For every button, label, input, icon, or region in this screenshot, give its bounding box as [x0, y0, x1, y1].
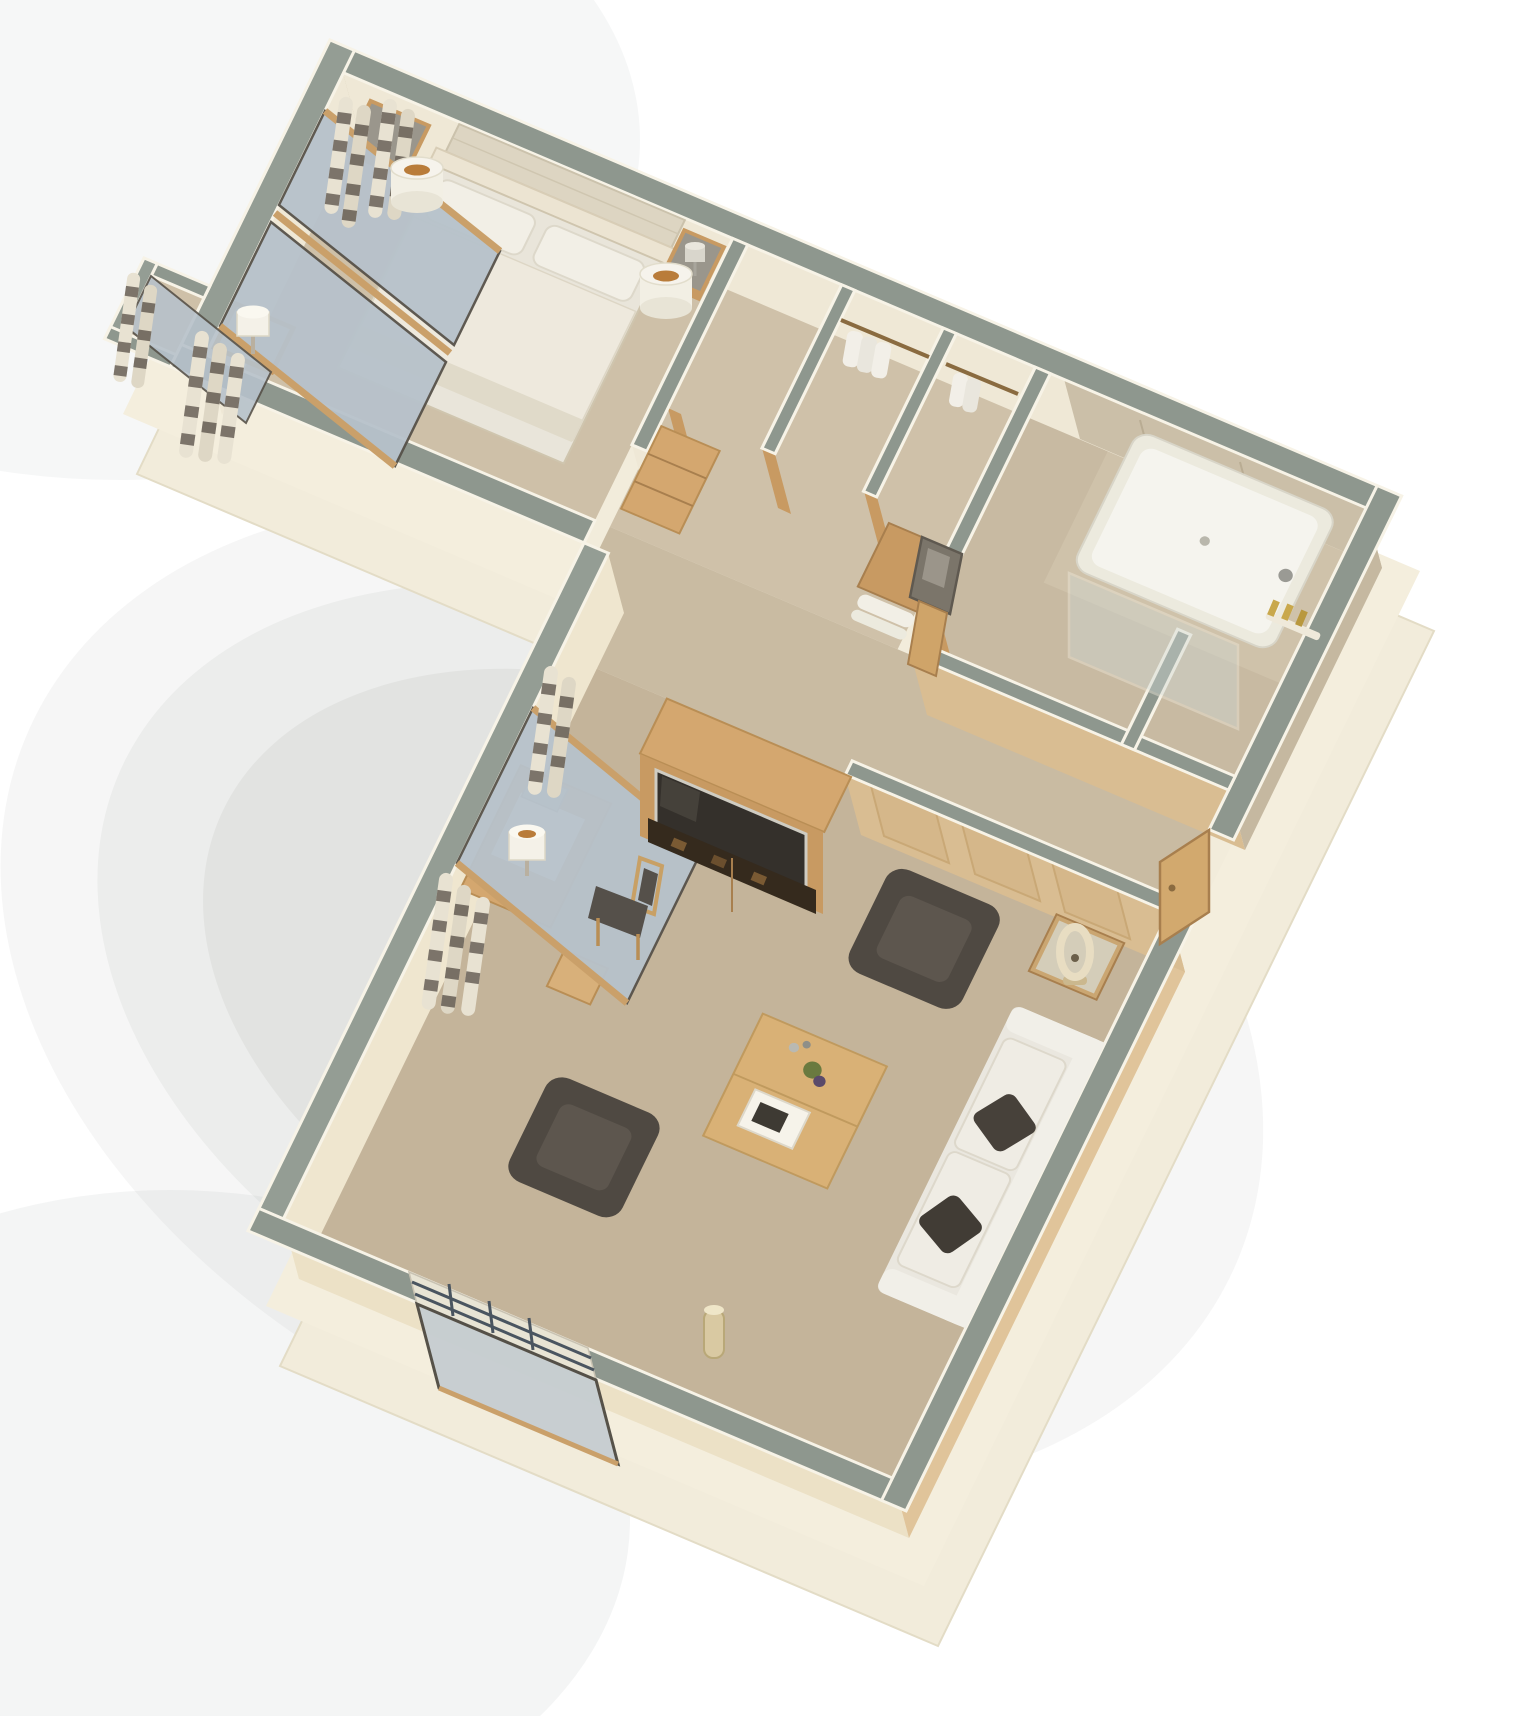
ring-lamp-center [1071, 954, 1079, 962]
curtain-stripe [184, 405, 199, 418]
lamp-shade-top [237, 306, 269, 319]
floor-lamp-top [704, 1305, 724, 1315]
curtain-stripe [224, 396, 239, 409]
curtain-stripe [449, 935, 464, 948]
pendant-inner-wood [404, 165, 430, 176]
curtain-stripe [328, 167, 343, 180]
gold-floor-lamp [704, 1305, 724, 1358]
curtain-stripe [454, 904, 469, 917]
pendant-bottom [640, 297, 692, 319]
curtain-stripe [125, 286, 139, 298]
curtain-stripe [432, 920, 447, 933]
curtain-stripe [114, 365, 128, 377]
curtain-stripe [332, 140, 347, 153]
curtain-stripe [229, 366, 244, 379]
curtain-stripe [325, 193, 340, 206]
curtain-stripe [141, 302, 155, 314]
curtain-stripe [469, 942, 484, 955]
curtain-stripe [137, 330, 151, 342]
curtain-stripe [377, 140, 392, 153]
curtain-stripe [555, 726, 570, 739]
curtain-stripe [441, 995, 456, 1008]
curtain-stripe [445, 967, 460, 980]
lamp-inner-wood [518, 830, 536, 838]
curtain-stripe [428, 949, 443, 962]
floorplan-render [0, 0, 1530, 1716]
curtain-stripe [436, 890, 451, 903]
curtain-stripe [345, 183, 360, 196]
curtain-stripe [533, 742, 548, 755]
curtain-stripe [550, 755, 565, 768]
curtain-stripe [354, 124, 369, 137]
curtain-stripe [559, 696, 574, 709]
curtain-stripe [206, 392, 221, 405]
curtain-stripe [133, 357, 147, 369]
curtain-stripe [373, 167, 388, 180]
curtain-stripe [192, 346, 207, 359]
curtain-stripe [423, 979, 438, 992]
curtain-stripe [465, 971, 480, 984]
curtain-stripe [541, 683, 556, 696]
lamp-shade-top [685, 242, 705, 250]
curtain-stripe [180, 433, 195, 446]
curtain-stripe [529, 770, 544, 783]
curtain-stripe [336, 112, 351, 125]
curtain-stripe [121, 314, 135, 326]
entry-door-handle [1169, 885, 1176, 892]
pendant-bottom [391, 191, 443, 213]
curtain-stripe [537, 713, 552, 726]
pendant-lamp-right [640, 263, 692, 319]
curtain-stripe [381, 112, 396, 125]
curtain-stripe [201, 421, 216, 434]
pendant-lamp-left [391, 157, 443, 213]
curtain-stripe [188, 376, 203, 389]
curtain-stripe [210, 362, 225, 375]
curtain-stripe [350, 154, 365, 167]
curtain-stripe [398, 126, 413, 139]
curtain-stripe [369, 195, 384, 208]
curtain-stripe [473, 912, 488, 925]
floor-lamp-body [704, 1310, 724, 1358]
pendant-inner-wood [653, 271, 679, 282]
curtain-stripe [220, 425, 235, 438]
curtain-stripe [342, 209, 357, 222]
curtain-stripe [117, 341, 131, 353]
